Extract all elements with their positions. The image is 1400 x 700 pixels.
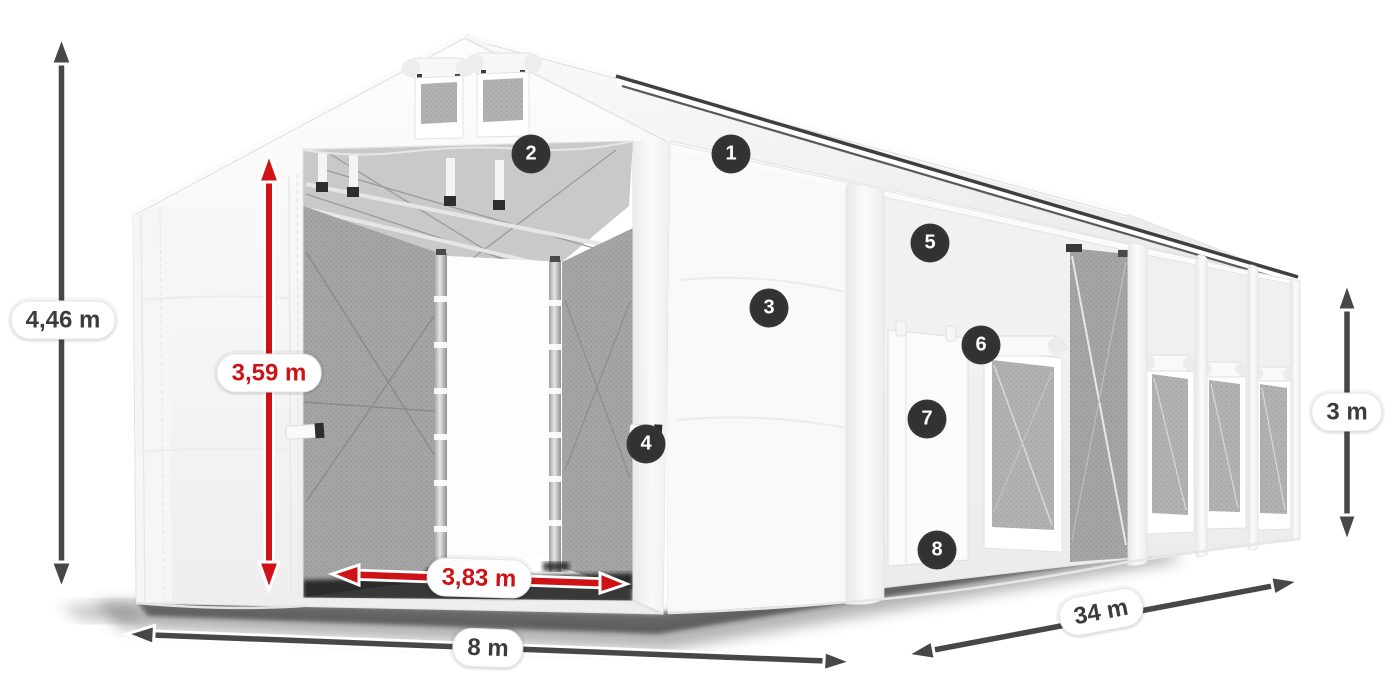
door-hanger-tab <box>946 326 956 341</box>
interior-right-mesh-wall <box>562 228 633 590</box>
interior-back-gap <box>447 256 562 560</box>
hotspot-8: 8 <box>918 531 957 570</box>
hotspot-5: 5 <box>911 224 950 263</box>
hotspot-6: 6 <box>962 326 1001 365</box>
tent-drawing <box>0 0 1400 700</box>
side-door <box>888 321 968 566</box>
dimension-label-side-height: 3 m <box>1311 393 1382 432</box>
side-panel-front <box>668 150 848 613</box>
dimension-label-total-height: 4,46 m <box>11 301 116 340</box>
front-left-corner-band <box>133 205 172 603</box>
dimension-label-width: 8 m <box>452 627 525 668</box>
side-wall <box>668 143 1300 613</box>
dimension-label-entrance-height: 3,59 m <box>217 354 322 393</box>
hotspot-2: 2 <box>512 135 551 174</box>
side-window-1 <box>980 336 1066 552</box>
side-window-2 <box>1141 355 1197 534</box>
dimension-label-entrance-width: 3,83 m <box>426 557 532 599</box>
hotspot-3: 3 <box>750 289 789 328</box>
tent-interior <box>303 141 633 603</box>
tent-illustration: 4,46 m 3,59 m 3,83 m 8 m 34 m 3 m 1 2 3 … <box>0 0 1400 700</box>
hotspot-4: 4 <box>627 425 666 464</box>
side-entrance-mesh <box>1066 244 1132 562</box>
hotspot-7: 7 <box>908 400 947 439</box>
hotspot-1: 1 <box>712 135 751 174</box>
corner-bracket <box>1066 244 1082 252</box>
door-hanger-tab <box>896 321 906 336</box>
